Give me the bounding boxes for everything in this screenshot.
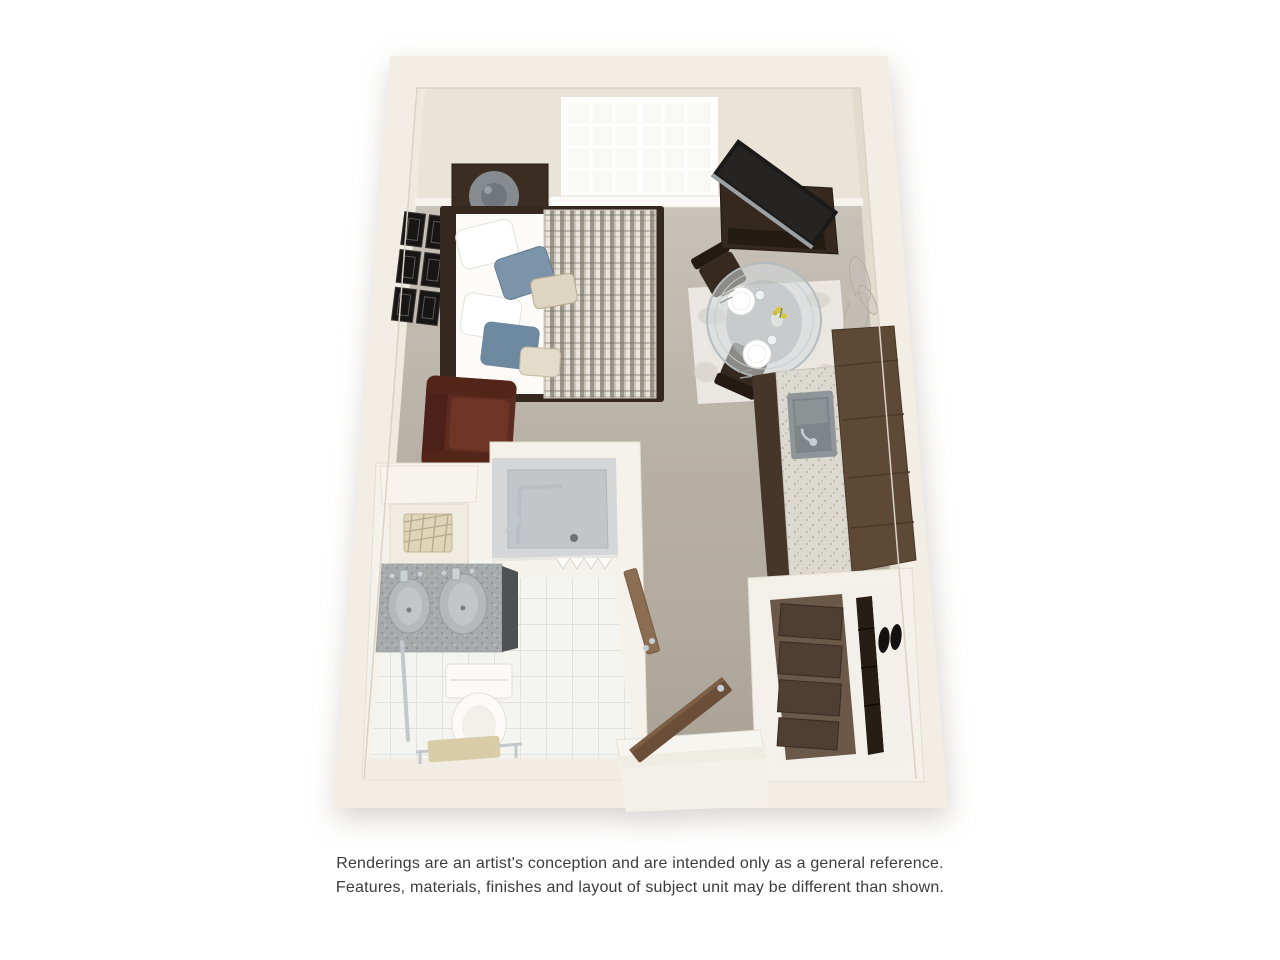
bath-ledge bbox=[380, 466, 478, 504]
disclaimer-line-1: Renderings are an artist's conception an… bbox=[0, 852, 1280, 876]
shower-drain bbox=[570, 534, 578, 542]
disclaimer-line-2: Features, materials, finishes and layout… bbox=[0, 876, 1280, 900]
bed bbox=[440, 206, 664, 402]
walk-in-shower bbox=[492, 458, 618, 569]
bathroom bbox=[362, 442, 660, 780]
disclaimer: Renderings are an artist's conception an… bbox=[0, 852, 1280, 900]
window-sill bbox=[550, 196, 728, 207]
kitchen-sink bbox=[787, 390, 837, 459]
page: Renderings are an artist's conception an… bbox=[0, 0, 1280, 960]
bathroom-floor-strip bbox=[364, 758, 640, 780]
double-vanity bbox=[376, 564, 518, 652]
window bbox=[550, 97, 728, 207]
basket bbox=[404, 514, 452, 552]
closet-dresser bbox=[770, 594, 856, 760]
floor-plan-rendering bbox=[0, 0, 1280, 960]
vanity-cabinet bbox=[502, 566, 518, 652]
closet bbox=[748, 568, 924, 782]
plan-root bbox=[333, 56, 948, 812]
